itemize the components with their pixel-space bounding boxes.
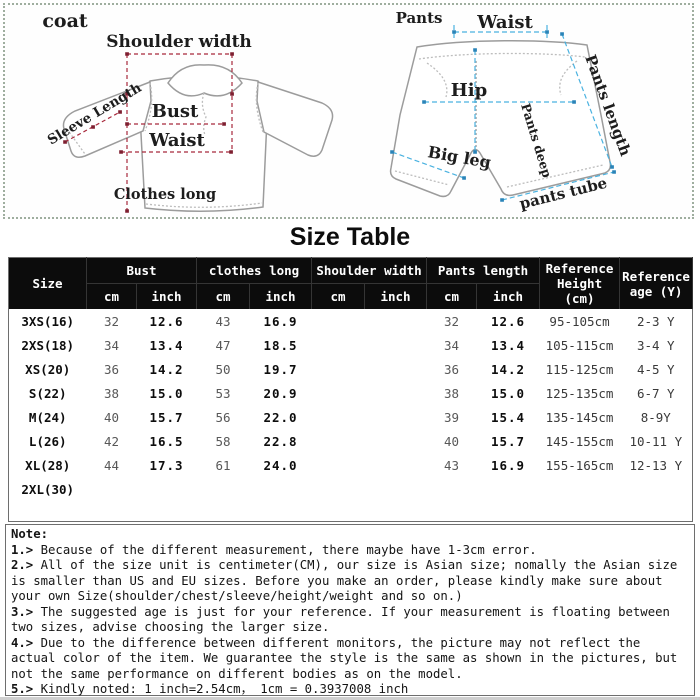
table-row: S(22)3815.05320.93815.0125-135cm6-7 Y <box>9 381 693 405</box>
pants-label-waist: Waist <box>476 12 533 33</box>
table-cell: 115-125cm <box>540 357 620 381</box>
size-table-header: Size Bust clothes long Shoulder width Pa… <box>9 258 693 310</box>
table-cell: 44 <box>87 453 137 477</box>
table-cell: 38 <box>87 381 137 405</box>
size-cell: 2XS(18) <box>9 333 87 357</box>
table-cell <box>197 477 250 501</box>
note-item: 2.> All of the size unit is centimeter(C… <box>11 558 689 605</box>
header-reference-height: Reference Height (cm) <box>540 258 620 310</box>
table-cell: 61 <box>197 453 250 477</box>
note-item: 4.> Due to the difference between differ… <box>11 636 689 683</box>
table-cell: 6-7 Y <box>620 381 693 405</box>
table-cell: 34 <box>87 333 137 357</box>
table-cell: 32 <box>427 309 477 333</box>
table-cell <box>365 333 427 357</box>
note-number: 2.> <box>11 558 33 572</box>
table-cell: 24.0 <box>250 453 312 477</box>
table-cell <box>365 429 427 453</box>
table-cell: 53 <box>197 381 250 405</box>
table-cell: 145-155cm <box>540 429 620 453</box>
table-cell <box>312 309 365 333</box>
table-cell: 15.7 <box>137 405 197 429</box>
note-item: 5.> Kindly noted: 1 inch=2.54cm， 1cm = 0… <box>11 682 689 698</box>
table-cell: 56 <box>197 405 250 429</box>
table-cell <box>540 477 620 501</box>
table-cell: 105-115cm <box>540 333 620 357</box>
header-pants-length: Pants length <box>427 258 540 284</box>
size-cell: 2XL(30) <box>9 477 87 501</box>
table-cell <box>365 309 427 333</box>
table-row: 3XS(16)3212.64316.93212.695-105cm2-3 Y <box>9 309 693 333</box>
size-cell: L(26) <box>9 429 87 453</box>
table-cell <box>365 405 427 429</box>
table-cell <box>312 357 365 381</box>
table-cell: 20.9 <box>250 381 312 405</box>
table-cell: 34 <box>427 333 477 357</box>
coat-label-waist: Waist <box>148 130 205 151</box>
note-number: 1.> <box>11 543 33 557</box>
table-cell <box>365 357 427 381</box>
table-cell: 155-165cm <box>540 453 620 477</box>
table-row: L(26)4216.55822.84015.7145-155cm10-11 Y <box>9 429 693 453</box>
table-cell: 18.5 <box>250 333 312 357</box>
pants-title: Pants <box>396 9 443 27</box>
table-cell: 42 <box>87 429 137 453</box>
header-reference-age: Reference age (Y) <box>620 258 693 310</box>
header-unit-cm: cm <box>312 284 365 310</box>
garment-diagram: coat Shoulder width Sleeve Length Bust W… <box>5 5 692 217</box>
coat-label-clothes-long: Clothes long <box>114 186 216 203</box>
header-size: Size <box>9 258 87 310</box>
table-cell: 32 <box>87 309 137 333</box>
table-row: 2XL(30) <box>9 477 693 501</box>
table-cell: 15.4 <box>477 405 540 429</box>
header-unit-cm: cm <box>427 284 477 310</box>
pants-drawing <box>391 41 611 197</box>
size-cell: M(24) <box>9 405 87 429</box>
table-cell: 16.5 <box>137 429 197 453</box>
table-cell: 95-105cm <box>540 309 620 333</box>
table-row: XS(20)3614.25019.73614.2115-125cm4-5 Y <box>9 357 693 381</box>
table-cell: 13.4 <box>137 333 197 357</box>
table-cell <box>312 477 365 501</box>
table-cell: 17.3 <box>137 453 197 477</box>
table-cell <box>312 429 365 453</box>
table-cell: 15.7 <box>477 429 540 453</box>
table-cell: 10-11 Y <box>620 429 693 453</box>
header-bust: Bust <box>87 258 197 284</box>
table-cell: 50 <box>197 357 250 381</box>
header-unit-inch: inch <box>365 284 427 310</box>
table-cell: 4-5 Y <box>620 357 693 381</box>
table-cell: 40 <box>427 429 477 453</box>
table-cell: 16.9 <box>250 309 312 333</box>
table-cell <box>312 333 365 357</box>
table-cell: 12.6 <box>137 309 197 333</box>
table-cell: 36 <box>427 357 477 381</box>
table-cell: 8-9Y <box>620 405 693 429</box>
table-cell: 40 <box>87 405 137 429</box>
measurement-diagram-panel: coat Shoulder width Sleeve Length Bust W… <box>3 3 694 219</box>
size-table-title: Size Table <box>0 223 700 252</box>
table-cell: 39 <box>427 405 477 429</box>
size-table: Size Bust clothes long Shoulder width Pa… <box>8 257 693 522</box>
size-cell: 3XS(16) <box>9 309 87 333</box>
table-cell: 15.0 <box>137 381 197 405</box>
table-cell <box>312 405 365 429</box>
coat-label-shoulder-width: Shoulder width <box>106 32 252 52</box>
header-unit-cm: cm <box>87 284 137 310</box>
coat-title: coat <box>42 10 88 32</box>
table-cell: 22.0 <box>250 405 312 429</box>
table-spacer-row <box>9 501 693 522</box>
note-item: 3.> The suggested age is just for your r… <box>11 605 689 636</box>
table-row: 2XS(18)3413.44718.53413.4105-115cm3-4 Y <box>9 333 693 357</box>
table-cell <box>477 477 540 501</box>
table-cell: 125-135cm <box>540 381 620 405</box>
table-cell: 15.0 <box>477 381 540 405</box>
header-unit-cm: cm <box>197 284 250 310</box>
table-cell <box>312 453 365 477</box>
note-number: 4.> <box>11 636 33 650</box>
table-cell: 13.4 <box>477 333 540 357</box>
size-table-body: 3XS(16)3212.64316.93212.695-105cm2-3 Y2X… <box>9 309 693 522</box>
table-cell: 12-13 Y <box>620 453 693 477</box>
table-cell: 38 <box>427 381 477 405</box>
table-cell <box>87 477 137 501</box>
header-clothes-long: clothes long <box>197 258 312 284</box>
size-cell: XS(20) <box>9 357 87 381</box>
table-cell: 47 <box>197 333 250 357</box>
notes-box: Note: 1.> Because of the different measu… <box>5 524 695 696</box>
table-cell <box>312 381 365 405</box>
table-cell: 16.9 <box>477 453 540 477</box>
table-cell <box>620 477 693 501</box>
table-cell: 3-4 Y <box>620 333 693 357</box>
table-cell: 2-3 Y <box>620 309 693 333</box>
table-cell <box>137 477 197 501</box>
table-cell: 43 <box>197 309 250 333</box>
header-unit-inch: inch <box>137 284 197 310</box>
table-cell: 12.6 <box>477 309 540 333</box>
table-cell: 43 <box>427 453 477 477</box>
note-number: 3.> <box>11 605 33 619</box>
table-cell: 14.2 <box>137 357 197 381</box>
header-unit-inch: inch <box>250 284 312 310</box>
table-cell <box>250 477 312 501</box>
note-item: 1.> Because of the different measurement… <box>11 543 689 559</box>
header-unit-inch: inch <box>477 284 540 310</box>
size-chart-page: coat Shoulder width Sleeve Length Bust W… <box>0 0 700 700</box>
pants-label-hip: Hip <box>451 80 487 101</box>
table-cell <box>365 381 427 405</box>
size-cell: S(22) <box>9 381 87 405</box>
size-cell: XL(28) <box>9 453 87 477</box>
table-cell: 22.8 <box>250 429 312 453</box>
table-cell: 19.7 <box>250 357 312 381</box>
notes-list: 1.> Because of the different measurement… <box>11 543 689 698</box>
table-cell <box>427 477 477 501</box>
table-row: XL(28)4417.36124.04316.9155-165cm12-13 Y <box>9 453 693 477</box>
table-cell: 36 <box>87 357 137 381</box>
note-number: 5.> <box>11 682 33 696</box>
table-row: M(24)4015.75622.03915.4135-145cm8-9Y <box>9 405 693 429</box>
table-cell <box>365 453 427 477</box>
table-cell: 14.2 <box>477 357 540 381</box>
header-shoulder-width: Shoulder width <box>312 258 427 284</box>
table-cell <box>365 477 427 501</box>
notes-heading: Note: <box>11 527 689 543</box>
coat-label-bust: Bust <box>152 101 199 122</box>
table-cell: 135-145cm <box>540 405 620 429</box>
table-cell: 58 <box>197 429 250 453</box>
